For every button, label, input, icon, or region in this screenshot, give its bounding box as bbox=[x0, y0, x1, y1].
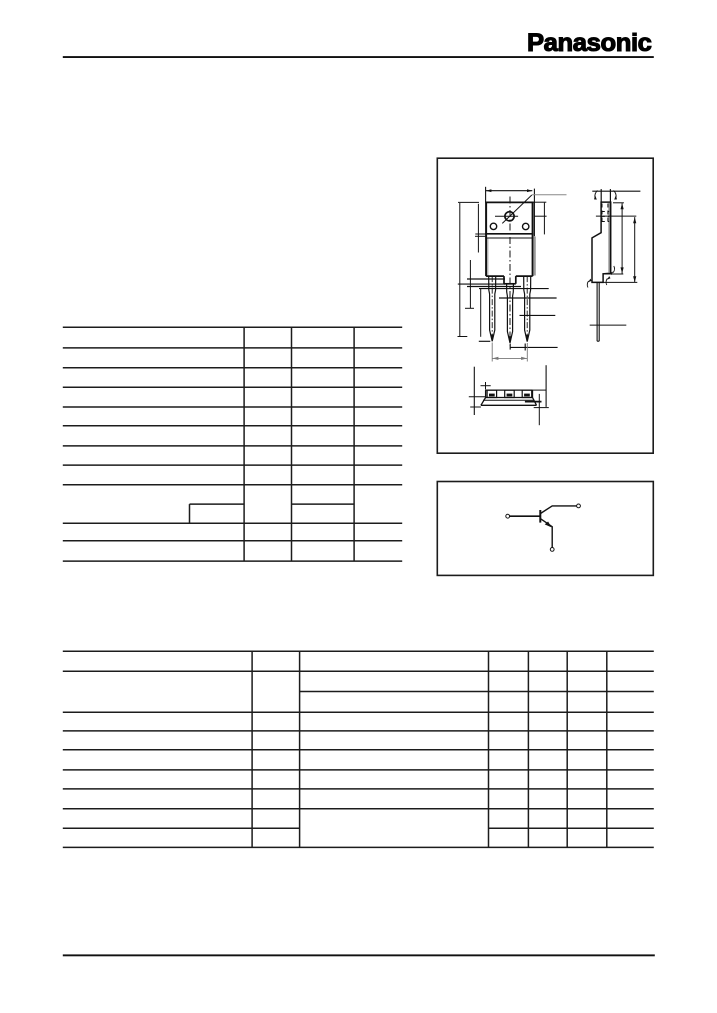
svg-text:Panasonic: Panasonic bbox=[527, 29, 652, 57]
